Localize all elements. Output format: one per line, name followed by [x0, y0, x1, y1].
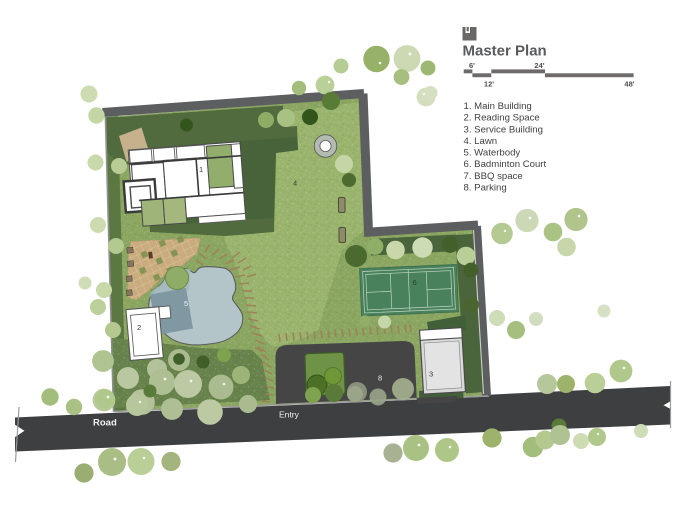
svg-text:8. Parking: 8. Parking [464, 183, 507, 194]
svg-text:1: 1 [199, 165, 203, 174]
svg-text:24': 24' [534, 61, 544, 70]
svg-text:4: 4 [293, 179, 297, 188]
svg-text:4. Lawn: 4. Lawn [464, 136, 498, 147]
svg-text:5: 5 [184, 299, 188, 308]
svg-text:3: 3 [429, 370, 433, 379]
svg-text:12': 12' [484, 79, 494, 88]
svg-text:6: 6 [413, 278, 417, 287]
svg-text:Master Plan: Master Plan [463, 43, 547, 60]
svg-text:1. Main Building: 1. Main Building [464, 101, 532, 112]
svg-text:2. Reading Space: 2. Reading Space [464, 113, 540, 124]
svg-text:3. Service Building: 3. Service Building [464, 124, 543, 135]
svg-text:Entry: Entry [279, 410, 300, 420]
svg-text:2: 2 [137, 323, 141, 332]
svg-text:7. BBQ space: 7. BBQ space [464, 171, 523, 182]
svg-text:6. Badminton Court: 6. Badminton Court [464, 159, 547, 170]
svg-text:6': 6' [469, 61, 475, 70]
svg-text:48': 48' [624, 79, 634, 88]
svg-text:Road: Road [93, 418, 117, 429]
svg-text:5. Waterbody: 5. Waterbody [464, 148, 521, 159]
svg-text:8: 8 [378, 374, 382, 383]
